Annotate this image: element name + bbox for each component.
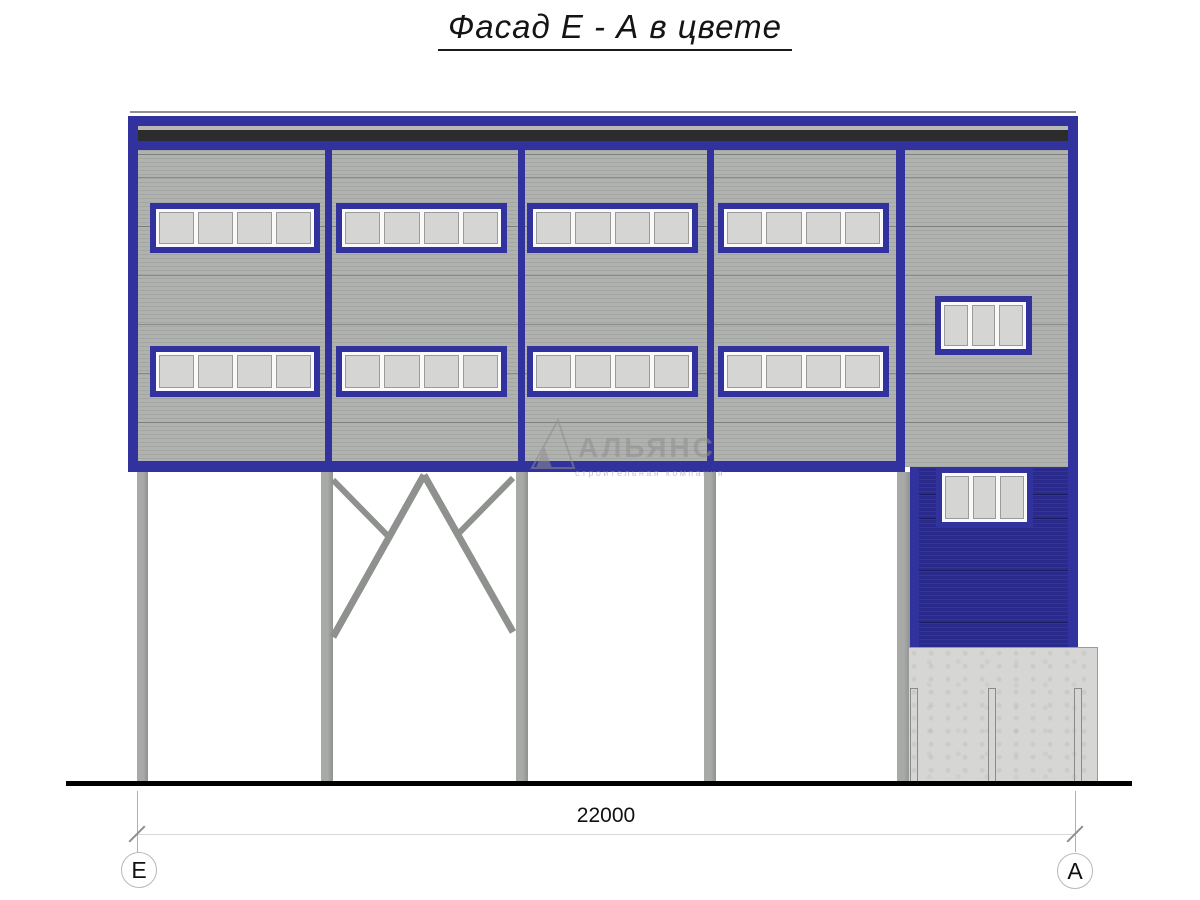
extension-line-right <box>1075 791 1076 852</box>
dimension-line <box>137 834 1075 835</box>
grid-axis-label-a: А <box>1067 858 1082 885</box>
brace-beam <box>424 475 513 632</box>
concrete-foundation <box>908 647 1098 783</box>
foundation-post <box>988 688 996 783</box>
brace-beam <box>458 478 513 534</box>
facade-drawing: Фасад Е - А в цвете <box>0 0 1200 900</box>
foundation-post <box>1074 688 1082 783</box>
ground-line <box>66 781 1132 786</box>
grid-axis-label-e: Е <box>131 857 146 884</box>
brace-beam <box>333 475 424 637</box>
foundation-post <box>910 688 918 783</box>
brace-beam <box>333 480 389 537</box>
grid-axis-bubble-a: А <box>1057 853 1093 889</box>
dimension-value: 22000 <box>137 804 1075 828</box>
grid-axis-bubble-e: Е <box>121 852 157 888</box>
